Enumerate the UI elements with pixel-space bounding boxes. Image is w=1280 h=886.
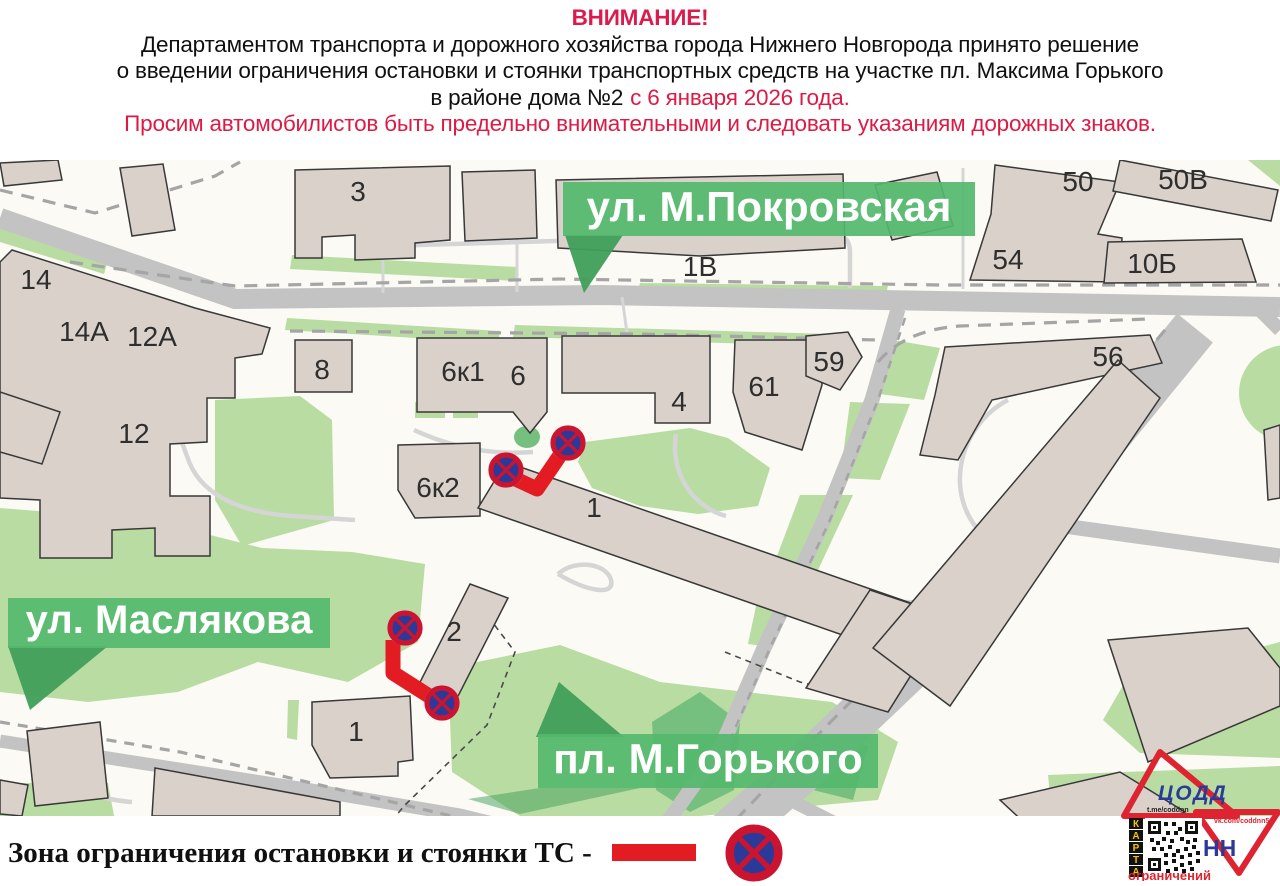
legend-label: Зона ограничения остановки и стоянки ТС … — [8, 837, 592, 870]
building-label: 61 — [748, 371, 779, 402]
no-stopping-sign-icon — [424, 685, 459, 720]
building-label: 1 — [348, 716, 364, 747]
map-canvas: 3 1В 50 50В 54 10Б 14 14А 12А 8 6к1 6 4 … — [0, 160, 1280, 816]
map: 3 1В 50 50В 54 10Б 14 14А 12А 8 6к1 6 4 … — [0, 160, 1280, 816]
notice-header: ВНИМАНИЕ! Департаментом транспорта и дор… — [0, 5, 1280, 138]
building-label: 6к2 — [416, 472, 459, 503]
building-label: 3 — [350, 176, 366, 207]
building-label: 12А — [127, 321, 177, 352]
codd-logo-block: ЦОДД НН t.me/coddnn vk.com/coddnn52 — [1100, 740, 1280, 881]
no-stopping-sign-icon — [488, 452, 523, 487]
karta-letter: А — [1132, 831, 1139, 842]
legend-symbols — [606, 824, 806, 882]
logo-org-label: ЦОДД — [1158, 782, 1228, 805]
notice-line-2: о введении ограничения остановки и стоян… — [0, 58, 1280, 85]
building-label: 1В — [683, 251, 717, 282]
building-label: 50В — [1158, 164, 1208, 195]
building-label: 12 — [118, 418, 149, 449]
codd-logo: ЦОДД НН t.me/coddnn vk.com/coddnn52 — [1100, 740, 1280, 881]
building-label: 6 — [510, 360, 526, 391]
restriction-zone-sample — [612, 844, 696, 861]
notice-line-4: Просим автомобилистов быть предельно вни… — [0, 111, 1280, 138]
building-label: 14 — [20, 264, 51, 295]
karta-letter: К — [1133, 819, 1140, 830]
notice-line-3: в районе дома №2с 6 января 2026 года. — [0, 85, 1280, 112]
attention-title: ВНИМАНИЕ! — [0, 5, 1280, 32]
building-label: 2 — [446, 616, 462, 647]
banner-gorkogo-label: пл. М.Горького — [553, 735, 863, 782]
logo-telegram-label: t.me/coddnn — [1147, 807, 1189, 814]
legend: Зона ограничения остановки и стоянки ТС … — [8, 824, 806, 882]
no-stopping-sign-icon — [550, 425, 585, 460]
logo-city-label: НН — [1203, 835, 1236, 861]
banner-maslyakova-label: ул. Маслякова — [26, 598, 313, 642]
building-label: 6к1 — [441, 356, 484, 387]
banner-pokrovskaya-label: ул. М.Покровская — [587, 183, 952, 230]
building-label: 10Б — [1127, 248, 1177, 279]
building-label: 59 — [813, 346, 844, 377]
notice-line-3-red: с 6 января 2026 года. — [630, 85, 850, 110]
building-label: 14А — [59, 316, 109, 347]
karta-caption: ограничений — [1128, 868, 1211, 881]
notice-line-3-black: в районе дома №2 — [430, 85, 623, 110]
notice-line-1: Департаментом транспорта и дорожного хоз… — [0, 32, 1280, 59]
building-label: 56 — [1092, 341, 1123, 372]
building-label: 1 — [586, 492, 602, 523]
karta-letter: Т — [1133, 855, 1139, 866]
building-label: 8 — [314, 354, 330, 385]
building-label: 50 — [1062, 166, 1093, 197]
logo-vk-label: vk.com/coddnn52 — [1214, 818, 1273, 825]
building-label: 4 — [671, 386, 687, 417]
no-stopping-sign-icon — [387, 610, 422, 645]
karta-letter: Р — [1133, 843, 1140, 854]
building-label: 54 — [992, 244, 1023, 275]
no-stopping-sign-icon — [725, 824, 782, 881]
